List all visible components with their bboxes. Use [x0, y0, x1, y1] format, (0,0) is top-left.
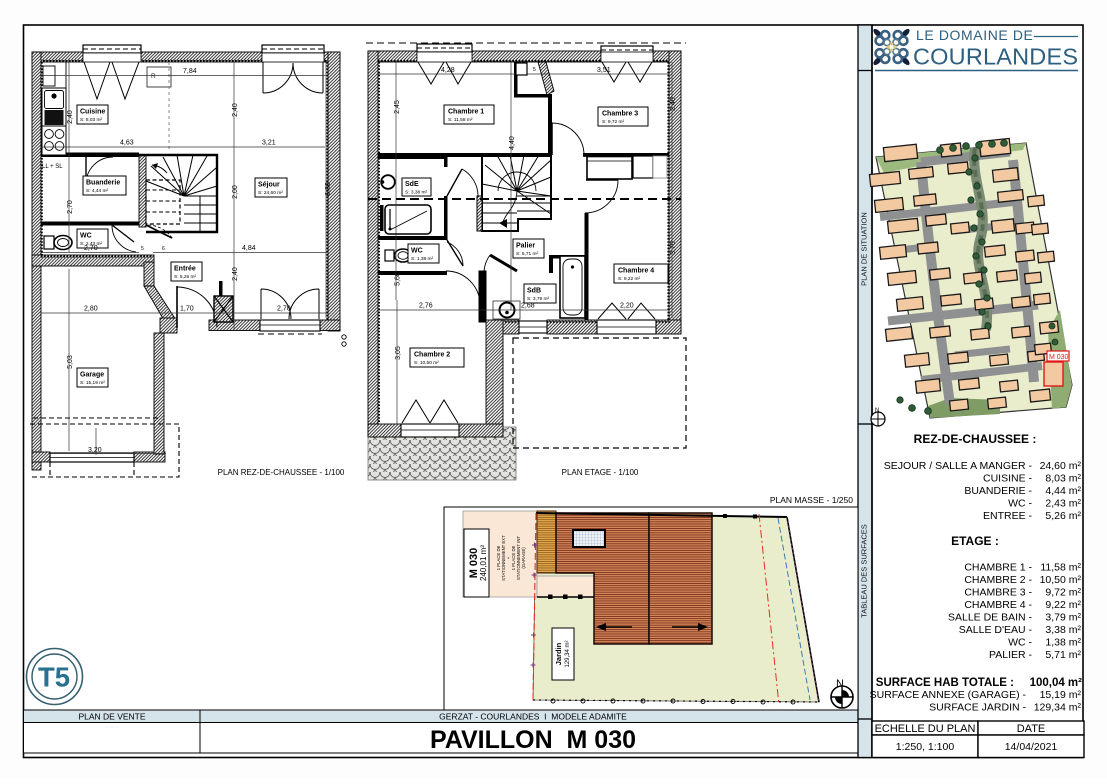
svg-text:4,63: 4,63 [120, 140, 134, 147]
svg-text:2,20: 2,20 [620, 303, 634, 310]
svg-text:2,68: 2,68 [521, 303, 535, 310]
svg-text:SdB: SdB [527, 288, 541, 295]
svg-text:S: 15,19 m²: S: 15,19 m² [80, 380, 105, 386]
svg-text:Jardin: Jardin [554, 642, 563, 665]
svg-text:14/04/2021: 14/04/2021 [1005, 741, 1058, 753]
svg-text:PLAN MASSE - 1/250: PLAN MASSE - 1/250 [770, 495, 853, 505]
svg-text:2,40: 2,40 [232, 267, 239, 281]
svg-text:2,76: 2,76 [419, 303, 433, 310]
svg-text:S: 3,38 m²: S: 3,38 m² [405, 190, 428, 196]
svg-text:S: 8,03 m²: S: 8,03 m² [80, 117, 103, 123]
svg-text:240,01 m²: 240,01 m² [479, 545, 488, 581]
svg-text:Garage: Garage [80, 372, 104, 379]
svg-text:Palier: Palier [516, 243, 535, 250]
svg-text:5: 5 [141, 246, 144, 252]
svg-text:7,84: 7,84 [183, 68, 197, 75]
svg-text:2,40: 2,40 [232, 103, 239, 117]
svg-text:100,04 m²: 100,04 m² [1030, 677, 1083, 689]
svg-text:SdE: SdE [405, 181, 419, 188]
svg-text:2,43 m²: 2,43 m² [1045, 498, 1081, 510]
svg-text:4,40: 4,40 [509, 136, 516, 150]
svg-text:S: 4,44 m²: S: 4,44 m² [86, 188, 109, 194]
svg-text:S: 11,58 m²: S: 11,58 m² [448, 117, 473, 123]
svg-text:WC -: WC - [1008, 637, 1032, 649]
svg-text:Séjour: Séjour [258, 182, 280, 189]
svg-text:COURLANDES: COURLANDES [913, 44, 1078, 70]
svg-text:Chambre 3: Chambre 3 [602, 111, 638, 118]
svg-text:LL + SL: LL + SL [42, 164, 63, 170]
svg-text:ENTREE -: ENTREE - [983, 510, 1033, 522]
svg-text:3,70: 3,70 [670, 241, 677, 255]
svg-text:REZ-DE-CHAUSSEE :: REZ-DE-CHAUSSEE : [914, 432, 1037, 446]
svg-text:CUISINE -: CUISINE - [983, 473, 1033, 485]
svg-text:24,60 m²: 24,60 m² [1040, 460, 1082, 472]
svg-text:2,45: 2,45 [394, 100, 401, 114]
svg-text:S: 1,38 m²: S: 1,38 m² [411, 256, 434, 262]
svg-text:WC: WC [80, 233, 92, 240]
svg-text:BUANDERIE -: BUANDERIE - [964, 485, 1032, 497]
svg-text:6: 6 [162, 246, 165, 252]
svg-text:S: 10,50 m²: S: 10,50 m² [414, 360, 439, 366]
svg-text:PLAN ETAGE - 1/100: PLAN ETAGE - 1/100 [562, 468, 639, 477]
svg-text:2,80: 2,80 [84, 306, 98, 313]
svg-text:5,26 m²: 5,26 m² [1045, 510, 1081, 522]
svg-text:S: 9,72 m²: S: 9,72 m² [602, 119, 625, 125]
svg-text:LE DOMAINE DE: LE DOMAINE DE [916, 27, 1034, 43]
svg-text:CHAMBRE 4 -: CHAMBRE 4 - [964, 599, 1032, 611]
svg-text:S: 5,71 m²: S: 5,71 m² [516, 251, 539, 257]
svg-text:3,05: 3,05 [395, 346, 402, 360]
svg-text:2,40: 2,40 [670, 97, 677, 111]
svg-text:SURFACE JARDIN -: SURFACE JARDIN - [929, 702, 1026, 714]
svg-text:Chambre 4: Chambre 4 [618, 268, 654, 275]
svg-text:S: 3,79 m²: S: 3,79 m² [527, 296, 550, 302]
svg-text:ETAGE :: ETAGE : [951, 534, 999, 548]
svg-text:- · - · -: - · - · - [106, 724, 118, 729]
svg-text:Chambre 1: Chambre 1 [448, 109, 484, 116]
svg-text:S: 5,26 m²: S: 5,26 m² [174, 274, 197, 280]
svg-text:9,22 m²: 9,22 m² [1045, 599, 1081, 611]
svg-text:3,51: 3,51 [597, 67, 611, 74]
svg-text:129,34 m²: 129,34 m² [565, 640, 571, 667]
svg-text:WC: WC [411, 248, 423, 255]
svg-text:PLAN DE SITUATION: PLAN DE SITUATION [860, 212, 869, 286]
svg-text:CHAMBRE 1 -: CHAMBRE 1 - [964, 562, 1032, 574]
svg-text:6,80: 6,80 [325, 182, 332, 196]
svg-text:3,20: 3,20 [88, 447, 102, 454]
svg-text:2,40: 2,40 [67, 110, 74, 124]
svg-text:3,21: 3,21 [262, 140, 276, 147]
svg-text:PLAN DE VENTE: PLAN DE VENTE [78, 712, 145, 722]
svg-text:9,72 m²: 9,72 m² [1045, 587, 1081, 599]
svg-text:WC -: WC - [1008, 498, 1032, 510]
svg-text:1,70: 1,70 [180, 306, 194, 313]
svg-text:SALLE DE BAIN -: SALLE DE BAIN - [948, 612, 1033, 624]
svg-text:11,58 m²: 11,58 m² [1040, 562, 1081, 574]
svg-text:M 030: M 030 [1049, 354, 1069, 361]
svg-text:SURFACE ANNEXE (GARAGE) -: SURFACE ANNEXE (GARAGE) - [870, 689, 1027, 701]
svg-text:15,19 m²: 15,19 m² [1040, 689, 1082, 701]
svg-text:2,70: 2,70 [277, 306, 291, 313]
svg-text:4,28: 4,28 [441, 67, 455, 74]
svg-text:1:250, 1:100: 1:250, 1:100 [896, 741, 955, 753]
svg-text:4,44 m²: 4,44 m² [1045, 485, 1081, 497]
svg-text:5: 5 [533, 67, 536, 73]
svg-text:Cuisine: Cuisine [80, 109, 105, 116]
svg-text:5,03: 5,03 [67, 355, 74, 369]
svg-text:T5: T5 [38, 662, 70, 693]
svg-text:1,38 m²: 1,38 m² [1045, 637, 1081, 649]
svg-text:2,00: 2,00 [232, 185, 239, 199]
svg-text:TABLEAU DES SURFACES: TABLEAU DES SURFACES [860, 524, 869, 618]
svg-text:Buanderie: Buanderie [86, 180, 120, 187]
svg-text:CHAMBRE 2 -: CHAMBRE 2 - [964, 574, 1032, 586]
svg-text:GERZAT - COURLANDES I MODELE: GERZAT - COURLANDES I MODELE ADAMITE [439, 712, 627, 722]
svg-text:S: 9,22 m²: S: 9,22 m² [618, 276, 641, 282]
svg-text:2,70: 2,70 [67, 200, 74, 214]
svg-text:ECHELLE DU PLAN: ECHELLE DU PLAN [875, 723, 976, 735]
svg-text:2,70: 2,70 [84, 245, 98, 252]
svg-text:5,60: 5,60 [395, 272, 402, 286]
svg-text:3,79 m²: 3,79 m² [1045, 612, 1081, 624]
svg-text:4,84: 4,84 [242, 245, 256, 252]
svg-text:S: 24,60 m²: S: 24,60 m² [258, 190, 283, 196]
svg-text:(GARAGE): (GARAGE) [521, 547, 526, 569]
svg-text:SURFACE HAB TOTALE :: SURFACE HAB TOTALE : [876, 677, 1014, 689]
svg-text:129,34 m²: 129,34 m² [1034, 702, 1082, 714]
svg-text:5,71 m²: 5,71 m² [1045, 649, 1081, 661]
svg-text:SALLE D'EAU -: SALLE D'EAU - [959, 624, 1033, 636]
svg-text:CHAMBRE 3 -: CHAMBRE 3 - [964, 587, 1032, 599]
svg-text:10,50 m²: 10,50 m² [1040, 574, 1082, 586]
svg-text:PLAN REZ-DE-CHAUSSEE - 1/100: PLAN REZ-DE-CHAUSSEE - 1/100 [218, 468, 345, 477]
svg-text:3,38 m²: 3,38 m² [1045, 624, 1081, 636]
svg-text:8,03 m²: 8,03 m² [1045, 473, 1081, 485]
svg-text:R: R [151, 73, 156, 80]
svg-text:PAVILLON M 030: PAVILLON M 030 [430, 726, 636, 754]
svg-text:Entrée: Entrée [174, 266, 196, 273]
svg-text:DATE: DATE [1017, 723, 1046, 735]
svg-text:SEJOUR / SALLE A MANGER -: SEJOUR / SALLE A MANGER - [884, 460, 1033, 472]
svg-text:Chambre 2: Chambre 2 [414, 352, 450, 359]
svg-text:PALIER -: PALIER - [989, 649, 1032, 661]
